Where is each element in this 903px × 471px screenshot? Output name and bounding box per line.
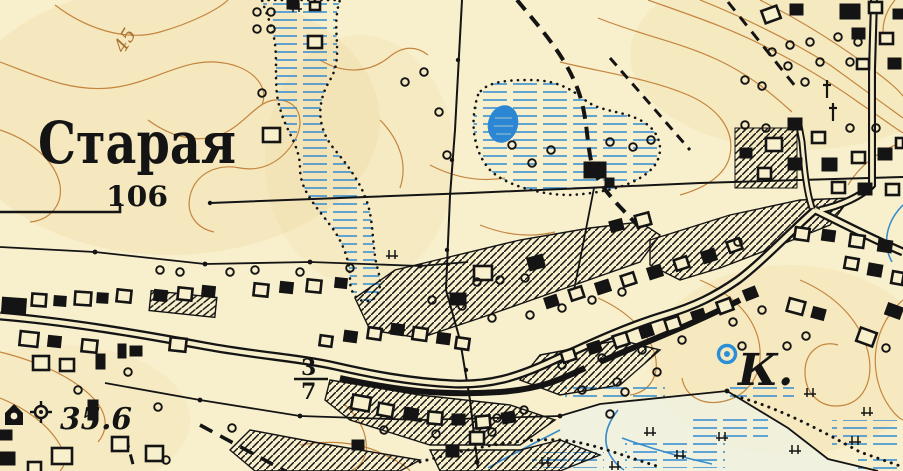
well-label: К. (736, 345, 793, 396)
building (169, 337, 186, 352)
marsh-patch (692, 416, 768, 438)
building (878, 148, 892, 160)
building (0, 452, 15, 465)
building (319, 335, 332, 347)
households-label: 106 (106, 180, 168, 213)
building (177, 287, 192, 300)
building (0, 430, 12, 440)
building (367, 327, 381, 340)
building (766, 138, 782, 151)
building (612, 332, 629, 348)
building (2, 297, 27, 314)
building (674, 256, 690, 270)
building (758, 168, 771, 179)
building (33, 356, 49, 370)
building (403, 407, 419, 421)
building (310, 2, 320, 10)
settlement-name-label: Старая (38, 109, 236, 177)
clearing-denominator-label: 7 (301, 379, 316, 405)
building (52, 448, 72, 464)
building (788, 158, 802, 170)
building (32, 294, 47, 307)
building (869, 2, 882, 13)
building (96, 354, 105, 369)
marsh-patch (832, 420, 900, 446)
building (858, 183, 872, 195)
building (452, 414, 465, 425)
building (844, 257, 859, 270)
spot-height-label: 35.6 (60, 402, 132, 437)
building (501, 411, 516, 424)
building (893, 9, 903, 19)
building (867, 263, 883, 277)
building (97, 293, 109, 304)
building (455, 337, 469, 350)
building (621, 272, 637, 286)
building (852, 152, 865, 163)
building (343, 330, 357, 343)
building (436, 332, 450, 345)
building (877, 239, 893, 253)
building (470, 432, 484, 444)
building (740, 148, 752, 158)
building (352, 440, 364, 450)
building (54, 296, 67, 307)
building (116, 289, 131, 302)
building (476, 415, 491, 428)
building (857, 59, 869, 69)
clearing-numerator-label: 3 (301, 355, 316, 381)
topographic-map: Старая 106 45 35.6 3 7 К. (0, 0, 903, 471)
building (787, 298, 806, 315)
building (880, 33, 893, 44)
building (201, 285, 215, 297)
building (377, 403, 394, 417)
building (19, 331, 38, 347)
building (788, 118, 802, 130)
building (279, 281, 293, 293)
building (390, 323, 404, 336)
building (412, 327, 428, 341)
building (335, 277, 348, 288)
building (263, 128, 280, 142)
map-canvas: Старая 106 45 35.6 3 7 К. (0, 0, 903, 471)
building (153, 289, 167, 301)
building (664, 316, 681, 332)
building (790, 4, 803, 15)
building (146, 446, 163, 461)
building (840, 4, 860, 19)
building (28, 462, 41, 471)
building (112, 437, 128, 451)
building (891, 271, 903, 285)
building (118, 344, 126, 358)
building (60, 359, 74, 371)
building (47, 335, 61, 347)
building (446, 446, 459, 457)
building (428, 411, 443, 424)
building (822, 158, 837, 171)
building (351, 395, 371, 412)
building (308, 36, 322, 48)
building (605, 178, 614, 186)
building (812, 132, 825, 143)
building (832, 182, 845, 193)
building (584, 162, 606, 178)
building (569, 286, 585, 300)
building (75, 291, 92, 305)
building (81, 339, 97, 353)
building (886, 184, 899, 195)
building (130, 346, 142, 356)
building (821, 229, 835, 242)
building (896, 138, 903, 148)
building (635, 212, 652, 227)
building (306, 279, 321, 292)
building (253, 283, 268, 296)
building (794, 227, 810, 241)
building (888, 58, 901, 69)
building (849, 234, 865, 248)
